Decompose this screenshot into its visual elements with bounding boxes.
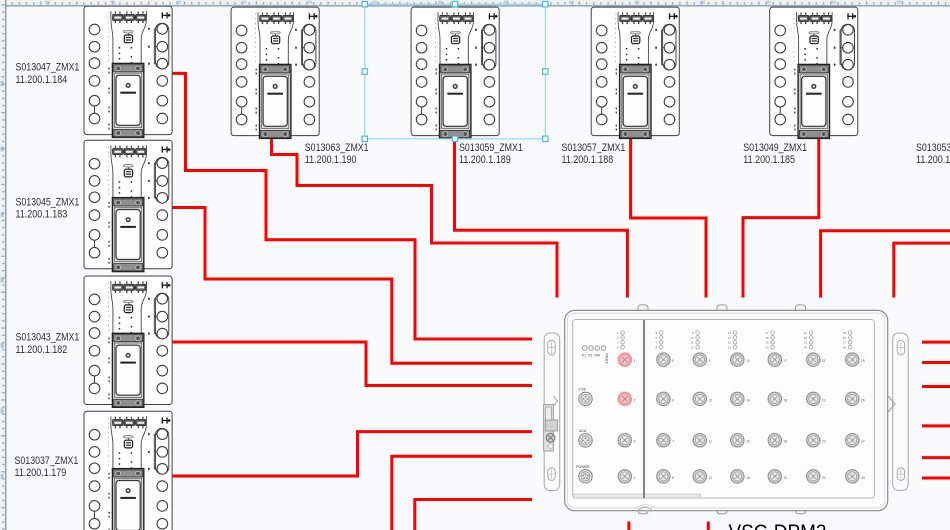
svg-text:17: 17 — [765, 331, 769, 335]
svg-text:20: 20 — [765, 346, 769, 350]
svg-text:21: 21 — [804, 331, 808, 335]
svg-text:26: 26 — [843, 336, 847, 340]
svg-text:S013057_ZMX1: S013057_ZMX1 — [562, 142, 626, 154]
svg-text:V.24: V.24 — [579, 387, 586, 391]
svg-text:11.200.1.185: 11.200.1.185 — [743, 154, 795, 166]
svg-text:3: 3 — [634, 440, 636, 444]
svg-text:18: 18 — [765, 336, 769, 340]
svg-text:4: 4 — [634, 476, 636, 480]
svg-text:23: 23 — [804, 341, 808, 345]
svg-text:S013045_ZMX1: S013045_ZMX1 — [16, 196, 80, 208]
svg-text:18: 18 — [784, 398, 788, 402]
svg-text:11.200.1.184: 11.200.1.184 — [16, 74, 68, 86]
svg-text:17: 17 — [784, 359, 788, 363]
svg-text:6: 6 — [672, 398, 674, 402]
svg-text:16: 16 — [746, 476, 750, 480]
svg-text:19: 19 — [784, 440, 788, 444]
svg-text:12: 12 — [690, 346, 694, 350]
svg-text:24: 24 — [822, 476, 826, 480]
svg-text:ACA: ACA — [579, 429, 587, 433]
svg-text:1: 1 — [634, 359, 636, 363]
svg-text:27: 27 — [861, 440, 865, 444]
svg-text:FAULT: FAULT — [605, 354, 609, 364]
svg-text:11.200.1.188: 11.200.1.188 — [562, 154, 614, 166]
svg-text:S013059_ZMX1: S013059_ZMX1 — [459, 142, 523, 154]
svg-text:5: 5 — [672, 359, 674, 363]
svg-text:25: 25 — [843, 331, 847, 335]
svg-text:15: 15 — [728, 341, 732, 345]
svg-text:10: 10 — [690, 336, 694, 340]
svg-text:11.200.1.186: 11.200.1.186 — [916, 154, 950, 166]
svg-text:S013049_ZMX1: S013049_ZMX1 — [743, 142, 807, 154]
svg-text:11.200.1.183: 11.200.1.183 — [16, 209, 68, 221]
svg-text:22: 22 — [822, 398, 826, 402]
svg-text:S013043_ZMX1: S013043_ZMX1 — [16, 332, 80, 344]
svg-text:11: 11 — [690, 341, 693, 345]
svg-text:S013037_ZMX1: S013037_ZMX1 — [15, 455, 79, 467]
svg-text:POWER: POWER — [576, 465, 590, 469]
svg-text:11.200.1.179: 11.200.1.179 — [15, 467, 67, 479]
svg-text:28: 28 — [861, 476, 865, 480]
svg-text:S013047_ZMX1: S013047_ZMX1 — [16, 62, 80, 74]
svg-text:19: 19 — [765, 341, 769, 345]
svg-text:11.200.1.189: 11.200.1.189 — [459, 154, 511, 166]
svg-text:28: 28 — [843, 346, 847, 350]
svg-text:11.200.1.190: 11.200.1.190 — [305, 154, 357, 166]
svg-text:15: 15 — [746, 440, 750, 444]
svg-text:10: 10 — [709, 398, 713, 402]
svg-text:P1: P1 — [582, 353, 586, 357]
svg-text:21: 21 — [822, 359, 826, 363]
svg-text:26: 26 — [861, 398, 865, 402]
svg-text:8: 8 — [672, 476, 674, 480]
svg-text:12: 12 — [709, 476, 713, 480]
svg-text:24: 24 — [804, 346, 808, 350]
svg-text:14: 14 — [746, 398, 750, 402]
svg-text:16: 16 — [728, 346, 732, 350]
svg-text:20: 20 — [784, 476, 788, 480]
svg-text:13: 13 — [728, 331, 732, 335]
svg-text:S013063_ZMX1: S013063_ZMX1 — [305, 142, 369, 154]
svg-text:VSC-DPM3: VSC-DPM3 — [729, 521, 827, 530]
svg-text:25: 25 — [861, 359, 865, 363]
svg-text:11.200.1.182: 11.200.1.182 — [16, 344, 68, 356]
svg-text:P2: P2 — [588, 353, 592, 357]
svg-text:14: 14 — [728, 336, 732, 340]
svg-text:22: 22 — [804, 336, 808, 340]
svg-text:23: 23 — [822, 440, 826, 444]
svg-text:13: 13 — [746, 359, 750, 363]
svg-text:11: 11 — [709, 440, 713, 444]
svg-text:7: 7 — [672, 440, 674, 444]
svg-text:2: 2 — [634, 398, 636, 402]
svg-text:9: 9 — [709, 359, 711, 363]
svg-text:S013053_ZMX1: S013053_ZMX1 — [916, 142, 950, 154]
svg-text:27: 27 — [843, 341, 847, 345]
svg-text:RM: RM — [595, 353, 600, 357]
